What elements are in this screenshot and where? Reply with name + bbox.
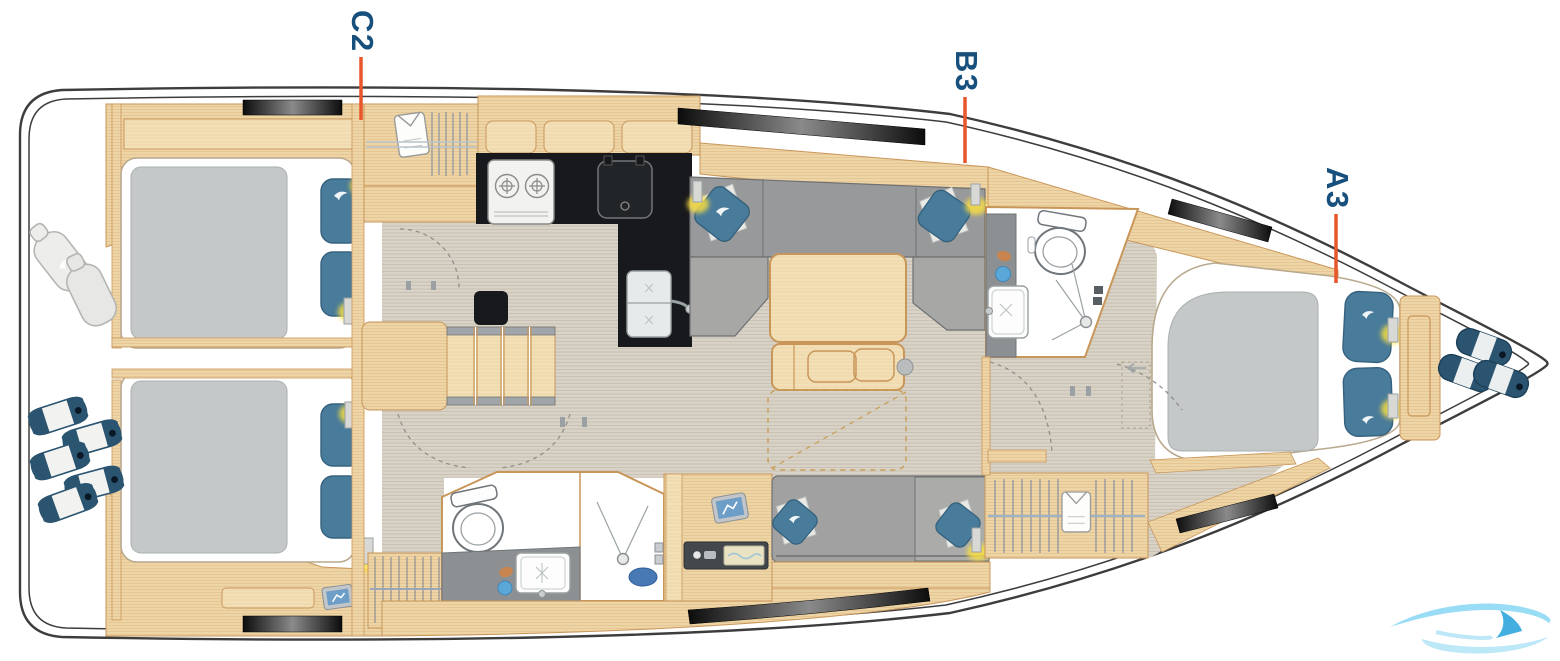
bath-mat [629,568,657,586]
yacht-floorplan: C2 B3 A3 [0,0,1560,661]
drain-icon [996,267,1011,282]
deck-hatch [243,100,342,115]
stove-icon [488,160,554,224]
table-leg-knob [897,359,913,375]
cabin-label-b3: B3 [949,50,984,93]
cabin-shelf-panel [222,588,314,608]
cabin-label-a3: A3 [1320,167,1355,210]
bath-sink-icon [516,553,570,598]
shirt-icon [1062,492,1091,532]
cabin-side-wall [112,380,121,620]
galley-hatch [474,291,508,325]
wardrobe-forward [364,104,478,222]
chart-icon [724,546,764,565]
bow-side-panel [1400,296,1440,440]
toilet-icon [450,484,503,552]
settee-base-shelf [772,562,990,588]
mattress [131,381,287,553]
owner-cabin-bow [1148,263,1440,552]
fore-partition-step [988,450,1046,462]
tv-icon [322,584,355,610]
drain-icon [498,581,512,595]
deck-hatch [243,616,342,632]
bath-sink-icon [986,286,1029,338]
settee-starboard [761,476,993,588]
aft-cabin-port [106,104,382,348]
aft-head-bathroom [442,472,664,601]
cabin-shelf-panel [124,119,370,149]
shirt-icon [394,112,430,158]
fridge-icon [598,156,652,218]
yacht-floorplan-image: C2 B3 A3 [0,0,1560,661]
companionway-stairs [362,322,555,410]
mattress [1168,292,1318,451]
salon-table [770,254,913,390]
tv-icon [711,492,749,524]
nav-station-cabinet [664,474,772,602]
watermark-wave-logo-icon [1390,604,1550,654]
mattress [131,167,287,339]
hanging-locker-fore [985,473,1148,558]
galley-overhead-lockers [478,96,700,155]
instrument-panel [684,542,768,569]
cabin-label-c2: C2 [345,10,380,53]
